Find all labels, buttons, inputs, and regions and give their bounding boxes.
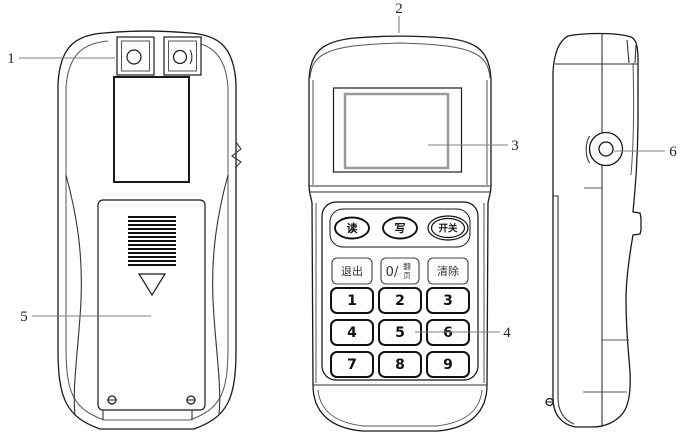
battery-cover-panel (98, 200, 205, 410)
key-5-label: 5 (395, 325, 405, 341)
callout-1-number: 1 (7, 51, 15, 67)
sensor-window-right-icon (174, 51, 187, 64)
zero-page-key-bottom: 页 (403, 271, 411, 280)
exit-key-label: 退出 (341, 264, 363, 278)
side-view (545, 33, 641, 427)
battery-cover-grip-ridges (128, 217, 176, 265)
display-screen (334, 88, 462, 172)
back-top-panel (114, 77, 189, 182)
zero-page-key-top: 翻 (403, 262, 411, 271)
oval-button-power: 开关 (428, 216, 468, 240)
sensor-block-right (164, 37, 201, 75)
oval-button-read: 读 (335, 218, 369, 239)
power-button-label: 开关 (438, 223, 458, 235)
key-2-label: 2 (395, 293, 405, 309)
callout-4-number: 4 (503, 325, 511, 341)
side-body-outline (553, 33, 641, 427)
key-9-label: 9 (443, 357, 453, 373)
key-4-label: 4 (347, 325, 357, 341)
callout-3-number: 3 (511, 138, 519, 154)
oval-button-write: 写 (383, 218, 417, 239)
clear-key-label: 清除 (437, 264, 459, 278)
zero-page-key-prefix: 0/ (386, 265, 399, 280)
read-button-label: 读 (347, 221, 358, 235)
figure-canvas: 读 写 开关 退出 0/ 翻 页 清除 1 2 3 (0, 0, 685, 438)
screen-display-area (345, 94, 448, 168)
connector-port-inner (599, 142, 613, 156)
key-8-label: 8 (395, 357, 405, 373)
function-key-row: 退出 0/ 翻 页 清除 (332, 258, 468, 284)
key-3-label: 3 (443, 293, 453, 309)
side-bottom-screw (545, 399, 554, 406)
write-button-label: 写 (395, 222, 406, 235)
callout-6-number: 6 (669, 144, 677, 160)
sensor-window-left-icon (127, 50, 141, 64)
key-6-label: 6 (443, 325, 453, 341)
key-7-label: 7 (347, 357, 357, 373)
callout-2-number: 2 (395, 1, 403, 17)
key-1-label: 1 (347, 293, 357, 309)
back-view (58, 31, 241, 429)
callout-5-number: 5 (20, 309, 28, 325)
sensor-block-left (117, 37, 154, 75)
battery-cover (98, 200, 205, 410)
front-view: 读 写 开关 退出 0/ 翻 页 清除 1 2 3 (309, 36, 491, 431)
